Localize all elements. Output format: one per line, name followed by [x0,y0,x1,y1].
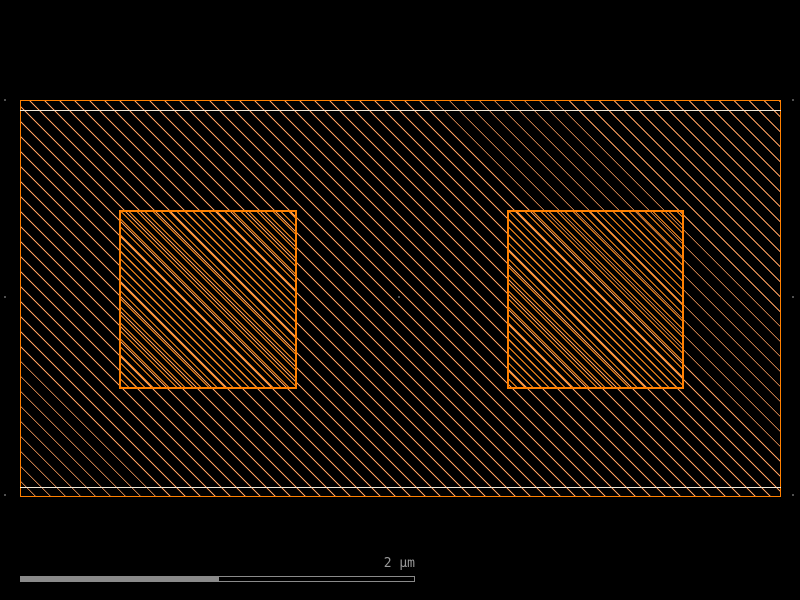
scalebar-outline-segment [218,576,415,582]
grid-dot [4,296,6,298]
scalebar-label: 2 µm [384,556,415,572]
grid-dot [792,296,794,298]
left-square-shape[interactable] [119,210,297,389]
grid-dot [4,494,6,496]
layout-canvas[interactable]: 2 µm [0,0,800,600]
right-square-shape[interactable] [507,210,684,389]
scalebar-solid-segment [20,576,218,582]
grid-dot [4,99,6,101]
grid-dot [792,99,794,101]
grid-dot [792,494,794,496]
